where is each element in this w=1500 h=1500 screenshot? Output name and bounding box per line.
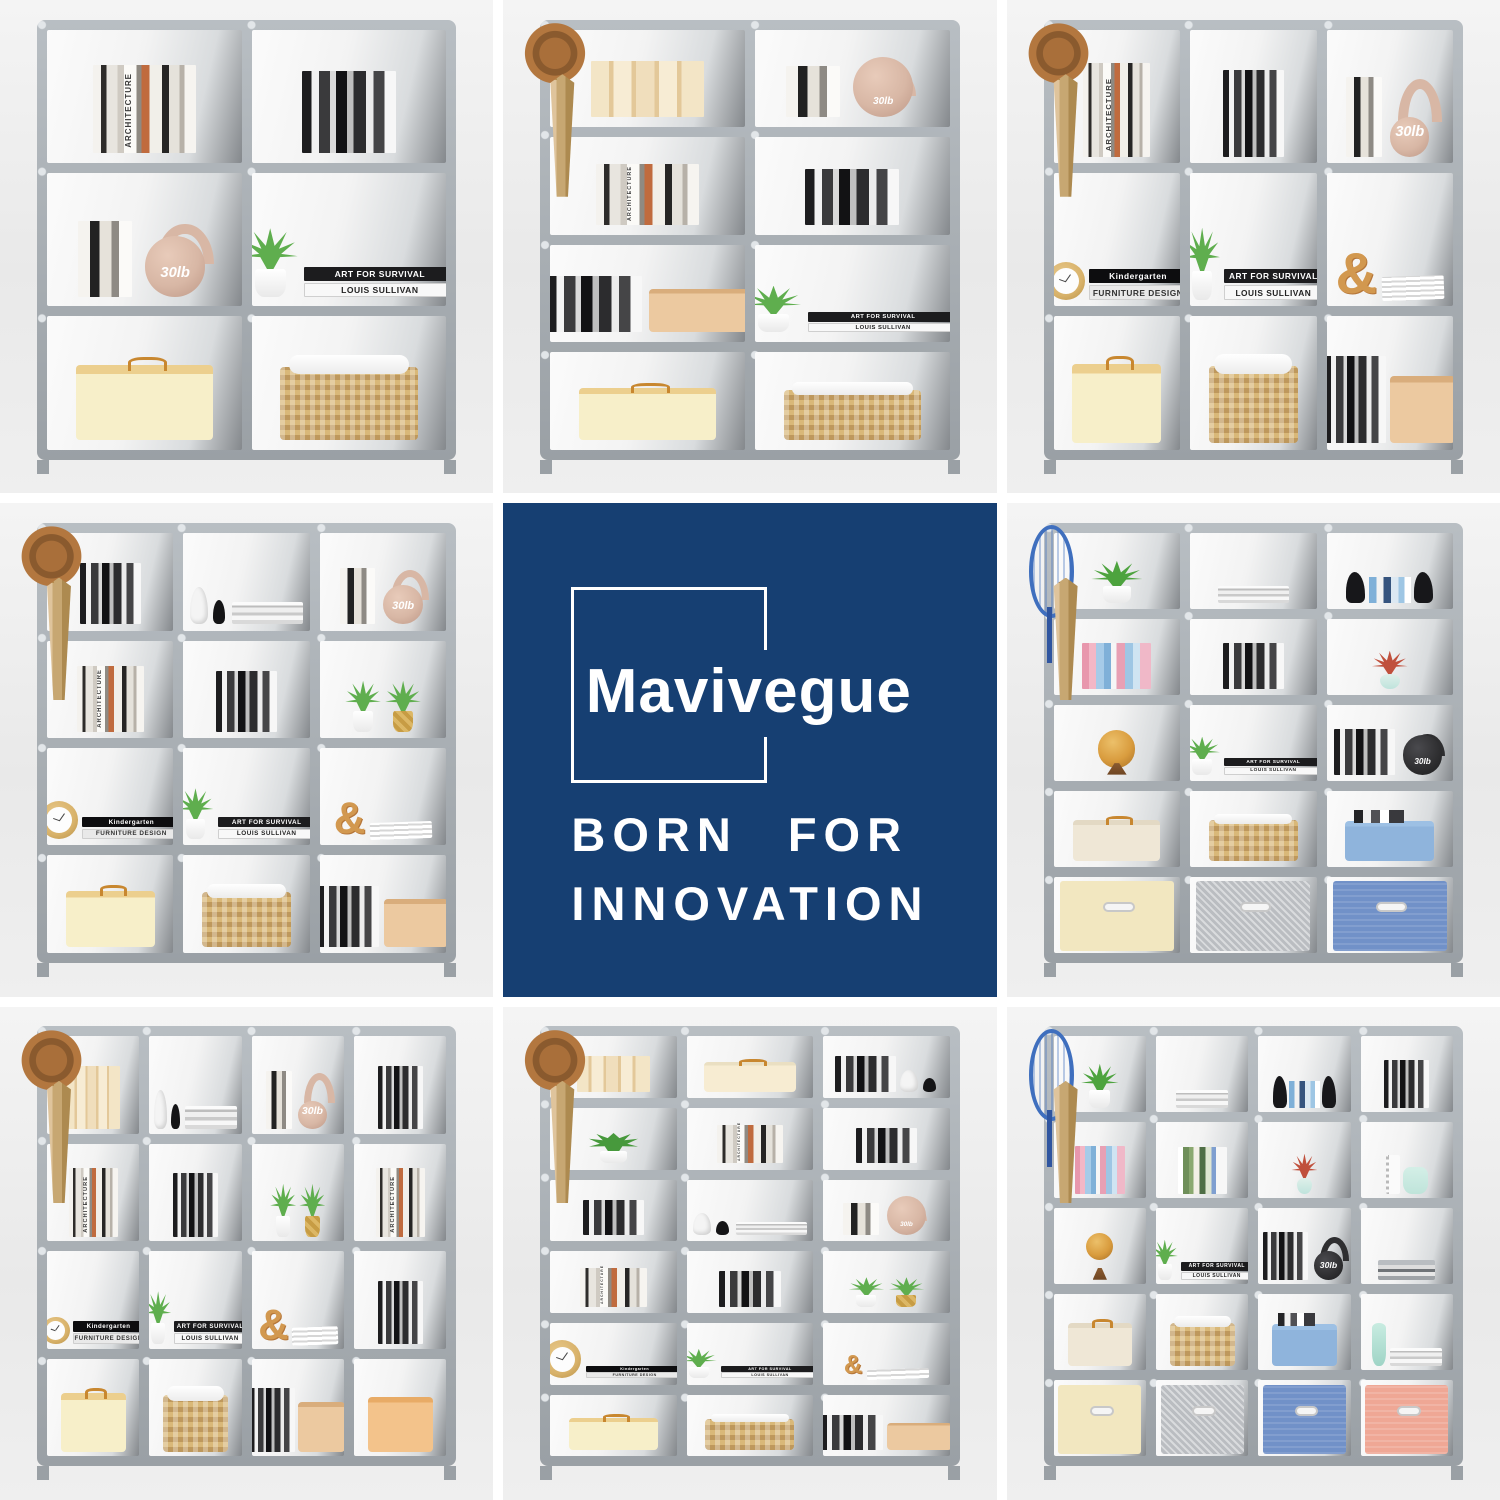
books-row: ARCHITECTURE: [77, 666, 144, 732]
titled-books: KindergartenFURNITURE DESIGN: [73, 1321, 139, 1344]
wicker-basket: [1170, 1323, 1235, 1366]
drawer-bin: [1161, 1385, 1244, 1454]
book-stack: [232, 602, 303, 624]
shelf-legs: [540, 460, 959, 474]
potted-plant: [270, 1184, 296, 1237]
potted-plant: [687, 1349, 717, 1378]
kettlebell: 30lb: [1386, 79, 1433, 156]
books-row: [805, 169, 899, 225]
books-row: [340, 568, 376, 624]
books-row: [856, 1128, 917, 1163]
cube-cell: [252, 1359, 344, 1456]
bookend-figure: [1273, 1076, 1287, 1108]
cube-shelf-frame: ARCHITECTURE30lbKindergartenFURNITURE DE…: [1044, 20, 1463, 460]
plant-pot: [1158, 1264, 1173, 1280]
cube-cell: [1190, 619, 1316, 695]
file-folders: [591, 61, 704, 117]
cube-cell: [47, 855, 173, 952]
book-spine-text: ARCHITECTURE: [737, 1122, 741, 1161]
cardboard-box: [298, 1402, 344, 1451]
drawer-bin: [1263, 1385, 1346, 1454]
shelf-legs: [37, 1466, 456, 1480]
ampersand-glyph: &: [844, 1351, 862, 1379]
book-stack: [1218, 586, 1289, 602]
plant-leaves: [1190, 228, 1220, 277]
titled-books: ART FOR SURVIVALLOUIS SULLIVAN: [1181, 1262, 1248, 1279]
cube-cell: [755, 352, 950, 449]
cube-cell: [354, 1251, 446, 1348]
fabric-bin: [1272, 1324, 1337, 1365]
notebook: [1386, 1155, 1400, 1194]
cube-cell: [823, 1251, 949, 1313]
titled-books: ART FOR SURVIVALLOUIS SULLIVAN: [1224, 269, 1316, 300]
books-row: [583, 1200, 644, 1235]
books-row: [786, 66, 841, 117]
brand-tagline-line2: INNOVATION: [571, 876, 929, 931]
cube-cell: [1258, 1122, 1350, 1198]
book-spine-title: Kindergarten: [82, 817, 173, 827]
brand-logo-name: Mavivegue: [580, 650, 926, 737]
book-spine-title: FURNITURE DESIGN: [73, 1333, 139, 1344]
cube-cell: [550, 352, 745, 449]
books-row: ARCHITECTURE: [93, 65, 196, 154]
plant-leaves: [345, 681, 381, 716]
desk-clock: [550, 1340, 581, 1378]
cube-cell: &: [823, 1323, 949, 1385]
book-stack: [1390, 1348, 1442, 1365]
plant-pot: [896, 1295, 916, 1307]
brand-tile: MavivegueBORN FORINNOVATION: [503, 503, 996, 996]
cube-cell: [1054, 877, 1180, 953]
plant-pot: [151, 1323, 166, 1344]
black-figurine: [716, 1221, 729, 1235]
globe: [1082, 1233, 1118, 1280]
globe-stand: [1093, 1268, 1107, 1280]
books-row: [378, 1066, 423, 1130]
cube-cell: [354, 1036, 446, 1133]
white-figurine: [900, 1070, 918, 1092]
plant-leaves: [1372, 651, 1408, 677]
plant-leaves: [270, 1184, 296, 1220]
cube-cell: ARCHITECTURE: [550, 1251, 676, 1313]
cube-shelf-frame: ARCHITECTURE30lbART FOR SURVIVALLOUIS SU…: [37, 20, 456, 460]
cube-cell: [1054, 1208, 1146, 1284]
titled-books: ART FOR SURVIVALLOUIS SULLIVAN: [174, 1321, 241, 1344]
desk-clock: [47, 801, 78, 839]
cardboard-box: [887, 1423, 950, 1450]
cube-cell: [1327, 316, 1453, 449]
books-row: [80, 563, 141, 624]
shelf-legs: [540, 1466, 959, 1480]
book-stack: [185, 1106, 237, 1129]
books-row: ARCHITECTURE: [596, 164, 699, 225]
cube-cell: ART FOR SURVIVALLOUIS SULLIVAN: [687, 1323, 813, 1385]
plant-pot: [276, 1216, 291, 1237]
cube-cell: [1258, 1380, 1350, 1456]
book-spine-title: LOUIS SULLIVAN: [1224, 285, 1316, 300]
potted-plant: [1372, 651, 1408, 689]
ampersand-decor: &: [1335, 248, 1377, 300]
titled-books: ART FOR SURVIVALLOUIS SULLIVAN: [304, 267, 446, 297]
cube-cell: ARCHITECTURE: [47, 30, 242, 163]
shelf-8-cube: 30lbARCHITECTUREART FOR SURVIVALLOUIS SU…: [540, 20, 959, 474]
books-row: [843, 1203, 879, 1235]
storage-box: [368, 1397, 433, 1452]
product-photo-tile-bottom-center: ARCHITECTURE30lbARCHITECTUREKindergarten…: [503, 1007, 996, 1500]
kettlebell-label: 30lb: [847, 96, 919, 107]
storage-box: [704, 1062, 795, 1091]
cube-cell: [1327, 533, 1453, 609]
books-between-bookends: [1289, 1081, 1319, 1108]
plant-leaves: [687, 1349, 717, 1369]
magazine-stack: [292, 1326, 338, 1345]
book-spine-title: LOUIS SULLIVAN: [1224, 767, 1316, 775]
plant-leaves: [755, 286, 801, 318]
kettlebell-ball: [1403, 735, 1442, 774]
cardboard-box: [649, 289, 745, 333]
cube-cell: [1054, 316, 1180, 449]
cube-cell: [1156, 1036, 1248, 1112]
books-row: ARCHITECTURE: [376, 1168, 425, 1237]
plant-pot: [393, 711, 413, 731]
shelf-12-cube: 30lbARCHITECTUREKindergartenFURNITURE DE…: [37, 523, 456, 977]
wicker-basket: [202, 892, 291, 946]
book-spine-title: ART FOR SURVIVAL: [218, 817, 310, 827]
book-spine-text: ARCHITECTURE: [1104, 78, 1113, 151]
book-spine-title: Kindergarten: [1089, 269, 1180, 284]
wicker-basket: [1209, 366, 1298, 443]
plant-pot: [186, 819, 206, 839]
cube-cell: [47, 316, 242, 449]
potted-plant: [1081, 1064, 1118, 1108]
cube-cell: 30lb: [1327, 30, 1453, 163]
cube-cell: [1156, 1294, 1248, 1370]
books-row: [1327, 356, 1386, 443]
plant-leaves: [149, 1291, 171, 1327]
fabric-bin: [1345, 821, 1434, 860]
book-spine-title: Kindergarten: [586, 1366, 677, 1372]
book-spine-title: Kindergarten: [73, 1321, 139, 1332]
figurines: [900, 1070, 938, 1092]
cube-cell: [687, 1251, 813, 1313]
book-spine-title: FURNITURE DESIGN: [586, 1372, 677, 1378]
clock-face: [550, 1347, 575, 1373]
kettlebell-label: 30lb: [380, 600, 427, 612]
product-image-grid: ARCHITECTURE30lbART FOR SURVIVALLOUIS SU…: [0, 0, 1500, 1500]
potted-plant: [1156, 1240, 1178, 1280]
cube-cell: [1156, 1122, 1248, 1198]
storage-box: [579, 388, 716, 440]
potted-plant: [252, 228, 298, 296]
titled-books: ART FOR SURVIVALLOUIS SULLIVAN: [218, 817, 310, 839]
titled-books: ART FOR SURVIVALLOUIS SULLIVAN: [721, 1366, 813, 1379]
kettlebell-label: 30lb: [1386, 124, 1433, 140]
book-spine-title: LOUIS SULLIVAN: [721, 1372, 813, 1378]
black-figurine: [213, 600, 226, 625]
globe: [1092, 730, 1141, 774]
plant-pot: [1297, 1178, 1312, 1194]
black-figurine: [171, 1104, 180, 1130]
books-row: ARCHITECTURE: [717, 1125, 784, 1163]
books-row: [266, 1071, 292, 1129]
cube-cell: [1361, 1208, 1453, 1284]
cube-cell: &: [252, 1251, 344, 1348]
kettlebell: 30lb: [295, 1073, 329, 1129]
figurines: [190, 587, 228, 624]
shelf-20-cube: ART FOR SURVIVALLOUIS SULLIVAN30lb: [1044, 1026, 1463, 1480]
wicker-basket: [784, 390, 921, 440]
drawer-bin: [1058, 1385, 1141, 1454]
storage-box: [1068, 1323, 1131, 1366]
cube-cell: [1190, 791, 1316, 867]
cube-cell: ART FOR SURVIVALLOUIS SULLIVAN: [183, 748, 309, 845]
books-row: [1178, 1147, 1227, 1194]
book-spine-title: ART FOR SURVIVAL: [1224, 269, 1316, 284]
books-row: ARCHITECTURE: [580, 1268, 647, 1306]
cube-cell: ART FOR SURVIVALLOUIS SULLIVAN: [1190, 173, 1316, 306]
cube-cell: [1190, 877, 1316, 953]
potted-plant: [1091, 561, 1142, 603]
book-spine-title: ART FOR SURVIVAL: [174, 1321, 241, 1332]
potted-plant: [755, 286, 801, 333]
cube-cell: [687, 1180, 813, 1242]
cube-cell: ARCHITECTURE: [550, 137, 745, 234]
wicker-basket: [705, 1419, 794, 1450]
books-row: [719, 1271, 780, 1306]
cube-cell: [823, 1108, 949, 1170]
kettlebell: 30lb: [1399, 734, 1446, 775]
plant-pot: [758, 314, 789, 333]
plant-leaves: [1291, 1154, 1317, 1181]
cube-shelf-frame: ART FOR SURVIVALLOUIS SULLIVAN30lb: [1044, 1026, 1463, 1466]
cube-cell: [149, 1144, 241, 1241]
cube-cell: KindergartenFURNITURE DESIGN: [550, 1323, 676, 1385]
titled-books: KindergartenFURNITURE DESIGN: [1089, 269, 1180, 300]
book-spine-title: LOUIS SULLIVAN: [1181, 1272, 1248, 1280]
white-figurine: [693, 1213, 711, 1235]
product-photo-tile-top-left: ARCHITECTURE30lbART FOR SURVIVALLOUIS SU…: [0, 0, 493, 493]
cube-cell: ART FOR SURVIVALLOUIS SULLIVAN: [755, 245, 950, 342]
plant-pot: [255, 269, 286, 296]
cube-cell: [320, 855, 446, 952]
cube-cell: [1190, 533, 1316, 609]
cube-cell: [1190, 30, 1316, 163]
potted-plant: [299, 1184, 325, 1237]
clock-face: [47, 807, 72, 833]
cube-cell: [1258, 1294, 1350, 1370]
book-stack: [1378, 1260, 1435, 1280]
cube-cell: [1361, 1380, 1453, 1456]
book-spine-title: ART FOR SURVIVAL: [721, 1366, 813, 1372]
ampersand-glyph: &: [334, 794, 366, 843]
plant-pot: [600, 1151, 627, 1163]
white-figurine: [154, 1090, 167, 1129]
ampersand-decor: &: [334, 799, 366, 839]
drawer-bin: [1060, 881, 1174, 950]
cube-cell: &: [320, 748, 446, 845]
cube-cell: [1190, 316, 1316, 449]
storage-box: [1072, 364, 1161, 444]
drawer-bin: [1196, 881, 1310, 950]
cube-cell: KindergartenFURNITURE DESIGN: [47, 748, 173, 845]
cube-cell: 30lb: [1327, 705, 1453, 781]
product-photo-tile-middle-right: ART FOR SURVIVALLOUIS SULLIVAN30lb: [1007, 503, 1500, 996]
storage-box: [76, 365, 213, 440]
cube-cell: [1054, 1294, 1146, 1370]
potted-plant: [1291, 1154, 1317, 1194]
storage-box: [1073, 820, 1160, 861]
drawer-bin: [1365, 1385, 1448, 1454]
kettlebell-label: 30lb: [1399, 757, 1446, 766]
kettlebell: 30lb: [1311, 1237, 1345, 1280]
clock-face: [47, 1321, 65, 1340]
plant-pot: [689, 1367, 709, 1379]
vase: [1372, 1323, 1387, 1366]
shelf-legs: [37, 460, 456, 474]
cube-shelf-frame: 30lbARCHITECTUREKindergartenFURNITURE DE…: [37, 523, 456, 963]
cube-cell: [149, 1036, 241, 1133]
books-row: [378, 1281, 423, 1345]
book-spine-text: ARCHITECTURE: [627, 166, 633, 221]
plant-pot: [1103, 586, 1132, 603]
book-spine-title: ART FOR SURVIVAL: [304, 267, 446, 281]
book-stack: [736, 1222, 807, 1235]
desk-clock: [1054, 262, 1085, 300]
bookend-figure: [1346, 572, 1365, 602]
cube-cell: ART FOR SURVIVALLOUIS SULLIVAN: [1156, 1208, 1248, 1284]
cube-cell: ARCHITECTURE: [354, 1144, 446, 1241]
book-spine-title: FURNITURE DESIGN: [82, 829, 173, 839]
ampersand-glyph: &: [1335, 242, 1377, 306]
books-row: [302, 71, 396, 153]
product-photo-tile-top-right: ARCHITECTURE30lbKindergartenFURNITURE DE…: [1007, 0, 1500, 493]
shelf-18-cube: ARCHITECTURE30lbARCHITECTUREKindergarten…: [540, 1026, 959, 1480]
plant-leaves: [252, 228, 298, 274]
figurines: [154, 1090, 182, 1129]
magazine-stack: [1381, 275, 1444, 301]
cube-cell: [687, 1036, 813, 1098]
kettlebell-label: 30lb: [1311, 1260, 1345, 1270]
cube-cell: [47, 1359, 139, 1456]
drawer-bin: [1333, 881, 1447, 950]
book-spine-title: LOUIS SULLIVAN: [174, 1333, 241, 1344]
cube-cell: [149, 1359, 241, 1456]
book-stack: [1176, 1090, 1228, 1107]
wicker-basket: [163, 1395, 228, 1451]
ampersand-glyph: &: [258, 1301, 289, 1348]
product-photo-tile-bottom-right: ART FOR SURVIVALLOUIS SULLIVAN30lb: [1007, 1007, 1500, 1500]
cube-shelf-frame: 30lbARCHITECTUREARCHITECTUREKindergarten…: [37, 1026, 456, 1466]
books-between-bookends: [1369, 577, 1411, 603]
plant-pot: [1192, 759, 1212, 774]
cube-cell: KindergartenFURNITURE DESIGN: [1054, 173, 1180, 306]
cube-cell: 30lb: [320, 533, 446, 630]
shelf-15-cube: ART FOR SURVIVALLOUIS SULLIVAN30lb: [1044, 523, 1463, 977]
titled-books: KindergartenFURNITURE DESIGN: [586, 1366, 677, 1379]
cube-cell: ART FOR SURVIVALLOUIS SULLIVAN: [1190, 705, 1316, 781]
kettlebell: 30lb: [380, 570, 427, 624]
cube-cell: [1327, 619, 1453, 695]
storage-box: [66, 891, 155, 947]
magazine-stack: [867, 1367, 930, 1379]
books-row: [1223, 70, 1284, 157]
book-spine-text: ARCHITECTURE: [97, 669, 103, 728]
books-row: [252, 1388, 295, 1452]
storage-box: [569, 1418, 658, 1450]
book-spine-text: ARCHITECTURE: [390, 1176, 396, 1233]
titled-books: ART FOR SURVIVALLOUIS SULLIVAN: [808, 312, 950, 332]
cube-cell: [320, 641, 446, 738]
potted-plant: [385, 681, 421, 732]
cube-cell: [1054, 1380, 1146, 1456]
cube-cell: [1361, 1294, 1453, 1370]
cube-cell: 30lb: [823, 1180, 949, 1242]
cube-cell: [1054, 791, 1180, 867]
titled-books: KindergartenFURNITURE DESIGN: [82, 817, 173, 839]
book-spine-text: ARCHITECTURE: [83, 1176, 89, 1233]
cube-cell: [823, 1395, 949, 1457]
plant-leaves: [299, 1184, 325, 1220]
cube-cell: [823, 1036, 949, 1098]
books-row: [1346, 77, 1382, 157]
cube-cell: [183, 533, 309, 630]
cube-cell: [1327, 791, 1453, 867]
potted-plant: [183, 788, 213, 839]
plant-pot: [1192, 271, 1212, 300]
ampersand-decor: &: [258, 1306, 289, 1344]
kettlebell-label: 30lb: [295, 1105, 329, 1117]
plant-pot: [353, 711, 373, 731]
magazine-stack: [370, 821, 433, 840]
potted-plant: [849, 1277, 885, 1306]
cube-cell: [1327, 877, 1453, 953]
shelf-16-cube: 30lbARCHITECTUREARCHITECTUREKindergarten…: [37, 1026, 456, 1480]
cube-cell: [1361, 1036, 1453, 1112]
shelf-6-cube: ARCHITECTURE30lbART FOR SURVIVALLOUIS SU…: [37, 20, 456, 474]
potted-plant: [1190, 228, 1220, 300]
white-figurine: [190, 587, 208, 624]
wicker-basket: [280, 367, 417, 440]
dog-bookends: [1346, 570, 1433, 603]
potted-plant: [345, 681, 381, 732]
cube-cell: KindergartenFURNITURE DESIGN: [47, 1251, 139, 1348]
cube-cell: 30lb: [755, 30, 950, 127]
cube-cell: [1258, 1036, 1350, 1112]
plant-pot: [305, 1216, 320, 1237]
books-row: [835, 1056, 896, 1091]
books-row: ARCHITECTURE: [69, 1168, 118, 1237]
books-row: [320, 886, 379, 947]
cube-cell: [252, 30, 447, 163]
plant-leaves: [183, 788, 213, 823]
product-photo-tile-bottom-left: 30lbARCHITECTUREARCHITECTUREKindergarten…: [0, 1007, 493, 1500]
black-figurine: [923, 1078, 936, 1092]
books-row: [1082, 643, 1151, 689]
cube-cell: [183, 641, 309, 738]
kettlebell-label: 30lb: [883, 1221, 930, 1228]
book-spine-title: LOUIS SULLIVAN: [218, 829, 310, 839]
potted-plant: [149, 1291, 171, 1344]
books-row: [1334, 729, 1395, 775]
plant-pot: [1089, 1090, 1110, 1108]
desk-clock: [47, 1317, 70, 1345]
books-row: [216, 671, 277, 732]
kettlebell-ball: [887, 1196, 926, 1235]
shelf-legs: [1044, 1466, 1463, 1480]
plant-pot: [1380, 674, 1400, 689]
book-spine-title: LOUIS SULLIVAN: [304, 283, 446, 297]
kettlebell-handle: [1398, 79, 1442, 121]
